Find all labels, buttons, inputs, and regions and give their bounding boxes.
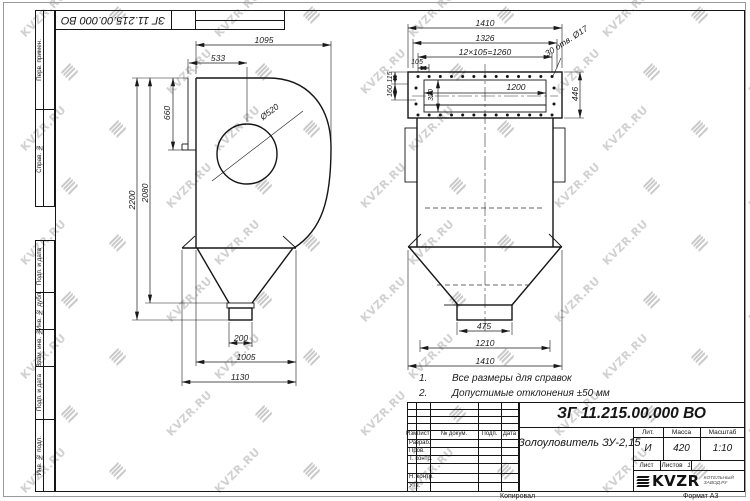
row-razrab: Разраб. — [409, 440, 431, 447]
logo-subtitle: КОТЕЛЬНЫЙ ЗАВОД.РУ — [704, 476, 734, 487]
stamp-podp-data-2: Подп. и дата — [35, 366, 55, 420]
kvzr-logo-icon — [637, 475, 649, 488]
title-doc-number: ЗГ 11.215.00.000 ВО — [518, 405, 745, 423]
stamp-inv-podl: Инв. № подл. — [35, 419, 55, 492]
row-nkontr: Н. контр. — [409, 474, 434, 481]
stamp-label: Перв. примен. — [36, 39, 43, 81]
row-tkontr: Т. контр. — [409, 456, 432, 463]
col-list: Лист — [416, 431, 430, 438]
logo-text: KVZR — [652, 472, 700, 490]
col-docum: № докум. — [430, 431, 478, 438]
row-prov: Пров. — [409, 448, 425, 455]
corner-doc-number-text: ЗГ 11.215.00.000 ВО — [61, 14, 165, 26]
stamp-label: Справ. № — [36, 144, 43, 173]
stamp-podp-data-1: Подп. и дата — [35, 240, 55, 293]
corner-stamp-doc-number: ЗГ 11.215.00.000 ВО — [55, 10, 172, 30]
label-mass: Масса — [663, 429, 700, 436]
stamp-label: Взам. инв. № — [36, 328, 43, 367]
format-label: Формат А3 — [683, 493, 718, 501]
company-logo: KVZR КОТЕЛЬНЫЙ ЗАВОД.РУ — [637, 471, 734, 491]
corner-stamp-box2 — [171, 10, 196, 30]
label-sheet: Лист — [633, 462, 660, 469]
stamp-label: Подп. и дата — [36, 374, 43, 411]
value-scale: 1:10 — [700, 443, 745, 454]
stamp-label: Инв. № дубл. — [36, 291, 43, 330]
title-product-name: Золоуловитель ЗУ-2,15 — [518, 437, 633, 449]
stamp-label: Подп. и дата — [36, 248, 43, 285]
label-scale: Масштаб — [700, 429, 745, 436]
label-sheets: Листов — [660, 462, 684, 469]
stamp-inv-dubl: Инв. № дубл. — [35, 292, 55, 330]
value-sheets: 1 — [684, 462, 694, 469]
stamp-sprav-n: Справ. № — [35, 109, 55, 207]
logo-subtitle-line2: ЗАВОД.РУ — [704, 481, 734, 486]
value-lit: И — [633, 443, 663, 454]
label-lit: Лит. — [633, 429, 663, 436]
copied-label: Копировал — [500, 493, 535, 501]
stamp-vzam-inv: Взам. инв. № — [35, 329, 55, 367]
stamp-label: Инв. № подл. — [36, 436, 43, 475]
col-podp: Подп. — [478, 431, 501, 438]
row-utv: Утв. — [409, 483, 420, 490]
value-mass: 420 — [663, 443, 700, 454]
col-data: Дата — [501, 431, 518, 438]
stamp-perv-primen: Перв. примен. — [35, 10, 55, 110]
drawing-sheet: { "page": { "corner_doc_number": "ЗГ 11.… — [0, 0, 750, 500]
corner-stamp-divider — [195, 20, 285, 21]
